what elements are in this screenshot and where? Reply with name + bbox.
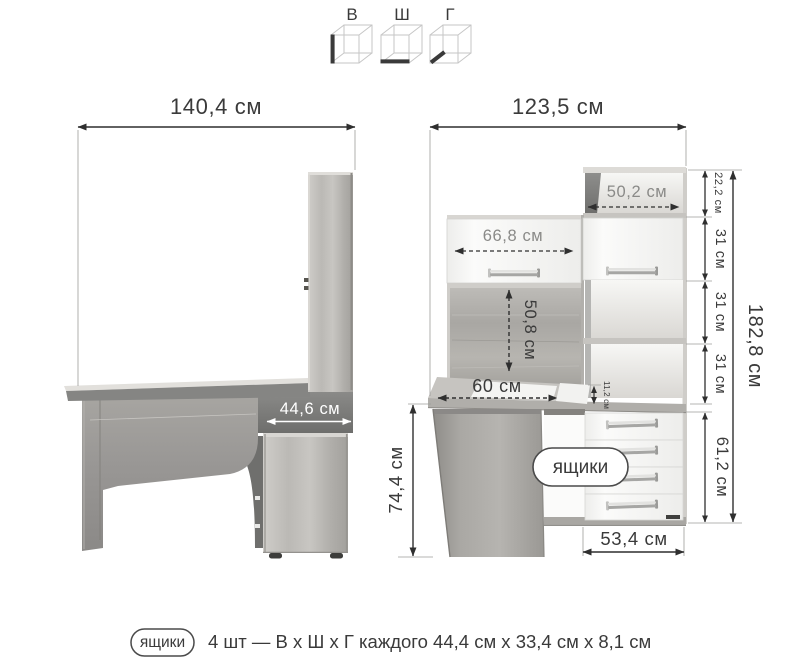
niche-width-label: 50,2 см	[607, 183, 668, 201]
footer-badge-label: ящики	[140, 634, 185, 651]
section-top-label: 22,2 см	[712, 172, 724, 214]
section-31-label: 31 см	[712, 292, 728, 332]
foot	[330, 553, 343, 559]
desk-side-panel	[82, 392, 258, 551]
desktop-depth-label: 60 см	[472, 376, 521, 396]
hutch-side-panel	[308, 172, 353, 392]
side-view: 140,4 см 44,6 см	[64, 94, 355, 559]
overall-height-label: 182,8 см	[744, 304, 766, 388]
section-31-label: 31 см	[712, 229, 728, 269]
ledge	[556, 383, 590, 404]
drawers-callout: ящики	[533, 448, 628, 486]
footer-note: ящики 4 шт — В х Ш х Г каждого 44,4 см х…	[131, 629, 651, 656]
middle-niches	[583, 280, 686, 398]
cube-depth-icon	[430, 25, 471, 63]
desk-pedestal	[433, 409, 544, 557]
desk-height-dimension: 74,4 см	[385, 404, 433, 557]
legend-label-depth: Г	[445, 5, 454, 24]
foot	[269, 553, 282, 559]
cube-width-icon	[381, 25, 423, 63]
hinge-mark	[304, 278, 309, 282]
legend-label-height: В	[346, 5, 357, 24]
desk-height-label: 74,4 см	[385, 446, 406, 513]
side-width-label: 140,4 см	[170, 94, 262, 119]
dimension-legend: В Ш Г	[331, 5, 471, 64]
hinge-mark	[255, 496, 260, 500]
front-view: 50,2 см 66,8 см	[385, 94, 766, 557]
drawers-callout-label: ящики	[553, 457, 608, 478]
overall-height-dimension: 182,8 см	[733, 171, 766, 522]
door-width-label: 66,8 см	[483, 227, 544, 245]
drawer-unit-width-label: 53,4 см	[600, 528, 667, 549]
drawer-unit-height-label: 61,2 см	[713, 437, 731, 498]
drawer-unit-side	[263, 433, 348, 559]
pedestal-depth-label: 44,6 см	[280, 400, 341, 418]
section-31-label: 31 см	[712, 354, 728, 394]
right-cabinet-door	[583, 218, 683, 280]
plinth-mark	[666, 515, 680, 519]
front-width-label: 123,5 см	[512, 94, 604, 119]
hinge-mark	[255, 524, 260, 528]
drawer-unit-width-dimension: 53,4 см	[583, 527, 684, 556]
back-panel-height-label: 50,8 см	[521, 300, 539, 361]
hinge-mark	[304, 286, 309, 290]
furniture-dimension-diagram: В Ш Г	[0, 0, 800, 667]
left-cabinet-door: 66,8 см	[447, 215, 581, 283]
ledge-height-label: 11,2 см	[602, 381, 611, 409]
legend-label-width: Ш	[394, 5, 410, 24]
footer-text: 4 шт — В х Ш х Г каждого 44,4 см х 33,4 …	[208, 631, 651, 652]
top-niche: 50,2 см	[583, 167, 686, 218]
cube-height-icon	[331, 25, 372, 64]
